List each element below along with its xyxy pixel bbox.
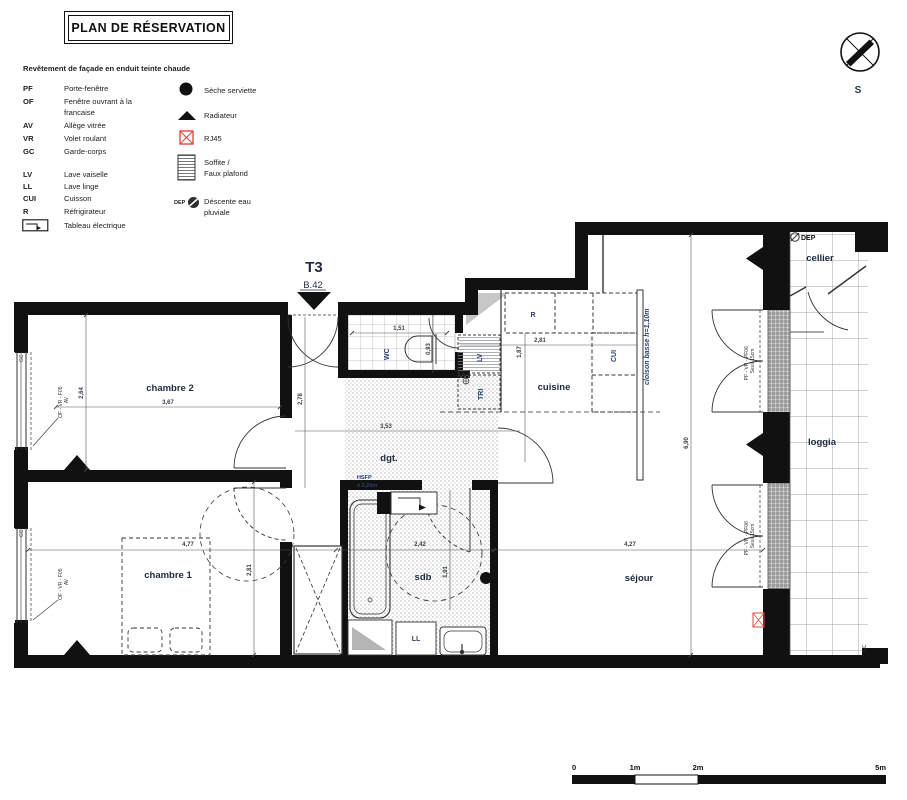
dim-chambre1-h: 2,81 bbox=[247, 564, 253, 576]
washer-label: LL bbox=[412, 636, 421, 643]
window-chambre2 bbox=[15, 348, 58, 452]
window-label-chambre1: OF - VR - F05 AV bbox=[49, 564, 70, 600]
dishwasher-label: LV bbox=[477, 353, 484, 362]
scale-tick-0: 0 bbox=[572, 763, 576, 772]
dim-wc-d: 0,93 bbox=[426, 343, 432, 355]
pf06-lower-label: PF - VR - PF06 Seuil 15cm bbox=[735, 517, 756, 556]
gc-label-1: GC bbox=[19, 354, 25, 362]
dim-chambre1-w: 4,77 bbox=[182, 542, 194, 548]
hsfp-line1: HSFP bbox=[357, 475, 372, 481]
seche-serviette-symbol bbox=[480, 572, 492, 584]
floor-plan-page: PLAN DE RÉSERVATION Revêtement de façade… bbox=[0, 0, 907, 800]
room-dgt: dgt. bbox=[380, 453, 397, 464]
room-sdb: sdb bbox=[415, 572, 432, 583]
dim-sdb-w: 2,42 bbox=[414, 542, 426, 548]
cloison-note: cloison basse h=1,10m bbox=[644, 309, 651, 385]
hsfp-line2: ± 2,20m bbox=[357, 483, 377, 489]
floor-plan-drawing: DEP bbox=[0, 0, 907, 800]
room-wc: WC bbox=[384, 348, 391, 360]
unit-type: T3 bbox=[305, 259, 323, 276]
dim-sdb-h: 1,91 bbox=[443, 566, 449, 578]
fridge-label: R bbox=[530, 312, 535, 319]
tri-label: TRI bbox=[478, 389, 485, 400]
compass-icon: S bbox=[841, 33, 879, 96]
dim-chambre2-w: 3,67 bbox=[162, 400, 174, 406]
window-chambre1 bbox=[15, 524, 58, 625]
scale-tick-5m: 5m bbox=[875, 763, 886, 772]
dim-sejour-w: 4,27 bbox=[624, 542, 636, 548]
entry-arrow-icon bbox=[297, 292, 331, 310]
unit-lot: B.42 bbox=[303, 280, 323, 291]
scale-tick-1m: 1m bbox=[630, 763, 641, 772]
room-cellier: cellier bbox=[806, 253, 834, 264]
dep-label: DEP bbox=[801, 235, 816, 242]
dim-cuisine-h: 1,87 bbox=[517, 346, 523, 358]
room-chambre1: chambre 1 bbox=[144, 570, 192, 581]
gc-label-2: GC bbox=[19, 529, 25, 537]
rj45-symbol bbox=[753, 613, 764, 627]
pf06-upper-label: PF - VR - PF06 Seuil 15cm bbox=[735, 342, 756, 381]
dim-chambre2-h: 2,64 bbox=[79, 387, 85, 399]
scale-bar: 0 1m 2m 5m bbox=[572, 763, 886, 784]
room-cuisine: cuisine bbox=[538, 382, 571, 393]
unit-label: T3 B.42 bbox=[297, 259, 331, 310]
cooktop-label: CUI bbox=[611, 350, 618, 362]
room-chambre2: chambre 2 bbox=[146, 383, 194, 394]
scale-tick-2m: 2m bbox=[693, 763, 704, 772]
room-sejour: séjour bbox=[625, 573, 654, 584]
compass-south-label: S bbox=[855, 85, 862, 96]
dim-dgt-w: 3,53 bbox=[380, 424, 392, 430]
dim-cuisine-w: 2,81 bbox=[534, 338, 546, 344]
gc-label-3: GC bbox=[862, 644, 868, 652]
window-label-chambre2: OF - VR - F05 AV bbox=[49, 382, 70, 418]
room-loggia: loggia bbox=[808, 437, 837, 448]
dim-wc-w: 1,51 bbox=[393, 326, 405, 332]
dim-sejour-h: 6,90 bbox=[684, 437, 690, 449]
dim-entry-h: 2,78 bbox=[298, 393, 304, 405]
